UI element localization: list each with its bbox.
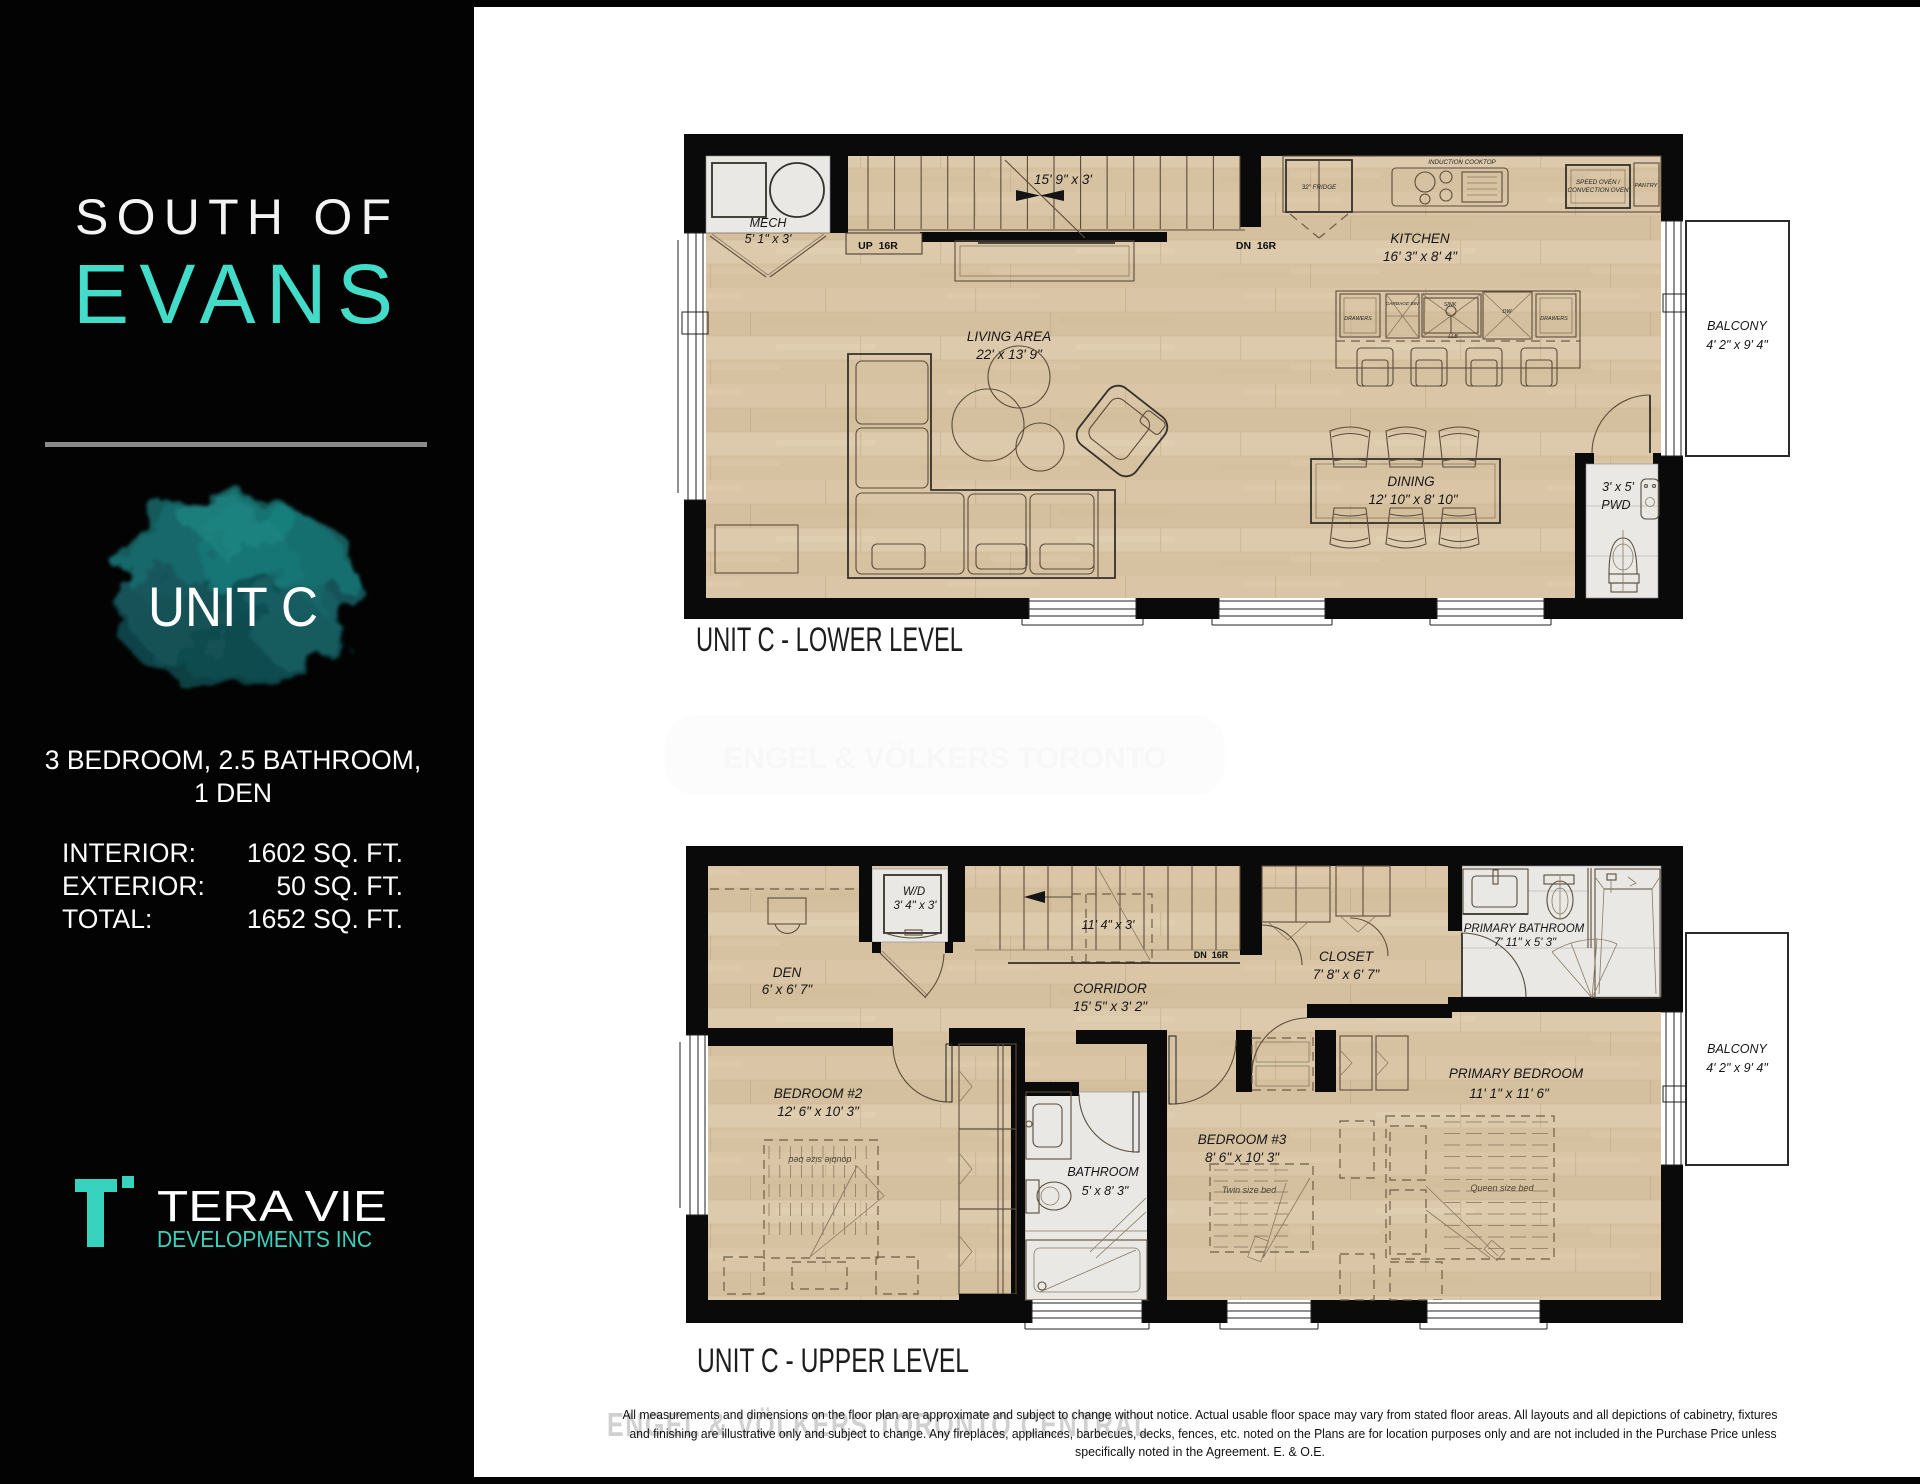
svg-text:16' 3" x 8' 4": 16' 3" x 8' 4" bbox=[1383, 249, 1458, 264]
svg-text:GARBAGE BIN: GARBAGE BIN bbox=[1385, 301, 1419, 307]
svg-text:DN 16R: DN 16R bbox=[1236, 240, 1277, 252]
svg-text:EVANS: EVANS bbox=[73, 247, 393, 341]
svg-text:INDUCTION COOKTOP: INDUCTION COOKTOP bbox=[1428, 159, 1496, 166]
svg-text:SPEED OVEN /: SPEED OVEN / bbox=[1576, 179, 1621, 186]
svg-text:CONVECTION OVEN: CONVECTION OVEN bbox=[1568, 187, 1629, 194]
svg-text:PANTRY: PANTRY bbox=[1635, 183, 1659, 189]
svg-text:BALCONY: BALCONY bbox=[1707, 1042, 1768, 1056]
svg-text:DRAWERS: DRAWERS bbox=[1540, 316, 1568, 322]
svg-text:7' 8" x 6' 7": 7' 8" x 6' 7" bbox=[1313, 967, 1381, 982]
svg-text:SINK: SINK bbox=[1444, 302, 1457, 308]
svg-text:LLB: LLB bbox=[1448, 334, 1458, 340]
svg-text:DW: DW bbox=[1503, 309, 1513, 315]
svg-text:32" FRIDGE: 32" FRIDGE bbox=[1302, 184, 1337, 191]
svg-text:BATHROOM: BATHROOM bbox=[1067, 1165, 1139, 1179]
svg-text:ENGEL & VÖLKERS TORONTO: ENGEL & VÖLKERS TORONTO bbox=[723, 742, 1166, 775]
svg-text:8' 6" x 10' 3": 8' 6" x 10' 3" bbox=[1205, 1150, 1280, 1165]
svg-text:15' 5" x 3' 2": 15' 5" x 3' 2" bbox=[1073, 999, 1148, 1014]
svg-text:UNIT C - LOWER LEVEL: UNIT C - LOWER LEVEL bbox=[696, 621, 963, 659]
svg-text:PRIMARY BEDROOM: PRIMARY BEDROOM bbox=[1449, 1066, 1584, 1081]
svg-text:DEVELOPMENTS INC: DEVELOPMENTS INC bbox=[157, 1226, 372, 1252]
svg-text:DEN: DEN bbox=[773, 965, 802, 980]
svg-text:BEDROOM #3: BEDROOM #3 bbox=[1198, 1132, 1287, 1147]
svg-text:Twin size bed: Twin size bed bbox=[1222, 1185, 1277, 1195]
svg-text:BALCONY: BALCONY bbox=[1707, 319, 1768, 333]
svg-text:MECH: MECH bbox=[750, 216, 788, 230]
svg-text:50 SQ. FT.: 50 SQ. FT. bbox=[276, 871, 403, 901]
svg-text:BEDROOM #2: BEDROOM #2 bbox=[774, 1086, 863, 1101]
svg-text:specifically noted in the Agre: specifically noted in the Agreement. E. … bbox=[1075, 1444, 1325, 1459]
svg-text:12' 6" x 10' 3": 12' 6" x 10' 3" bbox=[777, 1104, 860, 1119]
svg-text:11' 4" x 3': 11' 4" x 3' bbox=[1082, 918, 1135, 932]
svg-text:DRAWERS: DRAWERS bbox=[1344, 316, 1372, 322]
svg-text:TOTAL:: TOTAL: bbox=[62, 904, 152, 934]
svg-text:5' 1" x 3': 5' 1" x 3' bbox=[745, 232, 792, 246]
svg-text:15' 9" x 3': 15' 9" x 3' bbox=[1034, 172, 1092, 187]
svg-text:All measurements and dimension: All measurements and dimensions on the f… bbox=[623, 1407, 1778, 1422]
svg-text:12' 10" x 8' 10": 12' 10" x 8' 10" bbox=[1368, 492, 1458, 507]
svg-text:1652 SQ. FT.: 1652 SQ. FT. bbox=[247, 904, 403, 934]
svg-text:KITCHEN: KITCHEN bbox=[1390, 231, 1450, 246]
svg-text:3' 4" x 3': 3' 4" x 3' bbox=[894, 900, 938, 912]
svg-text:1 DEN: 1 DEN bbox=[194, 778, 272, 808]
svg-text:double size bed: double size bed bbox=[787, 1155, 851, 1165]
svg-text:7' 11" x 5' 3": 7' 11" x 5' 3" bbox=[1494, 937, 1557, 949]
svg-text:1602 SQ. FT.: 1602 SQ. FT. bbox=[247, 838, 403, 868]
svg-text:4' 2" x 9' 4": 4' 2" x 9' 4" bbox=[1706, 338, 1768, 352]
svg-text:PRIMARY BATHROOM: PRIMARY BATHROOM bbox=[1464, 923, 1585, 935]
svg-text:UNIT C - UPPER LEVEL: UNIT C - UPPER LEVEL bbox=[697, 1342, 969, 1380]
svg-text:DN 16R: DN 16R bbox=[1194, 950, 1229, 960]
svg-text:6' x 6' 7": 6' x 6' 7" bbox=[762, 982, 814, 997]
svg-text:4' 2" x 9' 4": 4' 2" x 9' 4" bbox=[1706, 1061, 1768, 1075]
svg-text:11' 1" x 11' 6": 11' 1" x 11' 6" bbox=[1469, 1086, 1550, 1101]
svg-text:LIVING AREA: LIVING AREA bbox=[967, 329, 1051, 344]
svg-text:Queen size bed: Queen size bed bbox=[1470, 1183, 1534, 1193]
svg-text:CLOSET: CLOSET bbox=[1319, 949, 1375, 964]
svg-text:UNIT C: UNIT C bbox=[148, 575, 318, 638]
svg-text:EXTERIOR:: EXTERIOR: bbox=[62, 871, 205, 901]
svg-text:TERA VIE: TERA VIE bbox=[157, 1182, 387, 1231]
svg-text:CORRIDOR: CORRIDOR bbox=[1073, 981, 1147, 996]
svg-text:SOUTH OF: SOUTH OF bbox=[75, 189, 391, 245]
svg-text:W/D: W/D bbox=[903, 886, 925, 898]
svg-text:PWD: PWD bbox=[1601, 498, 1630, 512]
svg-text:INTERIOR:: INTERIOR: bbox=[62, 838, 196, 868]
svg-text:DINING: DINING bbox=[1387, 474, 1434, 489]
svg-text:3' x 5': 3' x 5' bbox=[1602, 480, 1634, 494]
svg-text:UP 16R: UP 16R bbox=[858, 240, 898, 252]
svg-text:5' x 8' 3": 5' x 8' 3" bbox=[1082, 1184, 1129, 1198]
svg-text:and finishing are illustrative: and finishing are illustrative only and … bbox=[630, 1426, 1777, 1441]
svg-text:3 BEDROOM, 2.5 BATHROOM,: 3 BEDROOM, 2.5 BATHROOM, bbox=[45, 745, 421, 775]
